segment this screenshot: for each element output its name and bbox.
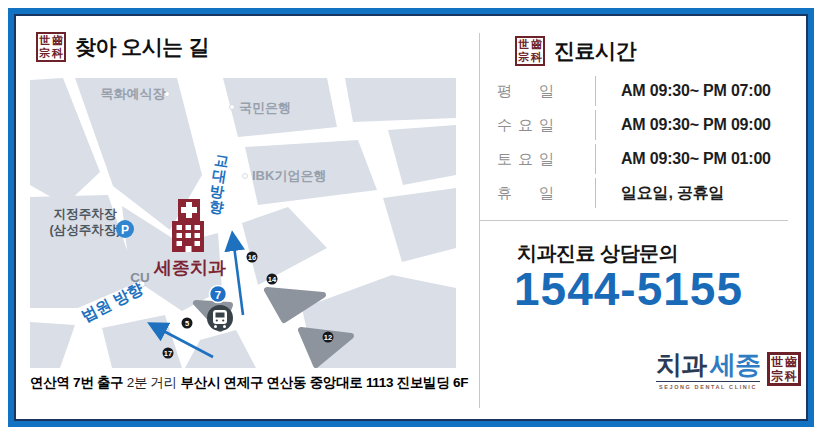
logo-word-chigwa: 치과	[656, 350, 706, 380]
hours-day: 토요일	[497, 150, 554, 169]
exit-number-5: 5	[182, 318, 193, 329]
hours-row: 평일AM 09:30~ PM 07:00	[497, 76, 789, 106]
hours-row: 수요일AM 09:30~ PM 09:00	[497, 110, 789, 140]
clinic-logo: 치과세종 SEJONG DENTAL CLINIC 世 齒 宗 科	[656, 352, 801, 390]
svg-text:7: 7	[215, 289, 221, 301]
logo-word-sejong: 세종	[710, 350, 760, 380]
horizontal-divider	[480, 220, 788, 221]
svg-text:14: 14	[268, 275, 277, 284]
hours-day: 휴일	[497, 184, 554, 203]
svg-text:16: 16	[248, 253, 256, 262]
clinic-seal-icon: 世 齒 宗 科	[36, 32, 66, 62]
seal-char: 科	[52, 48, 63, 59]
hours-rows: 평일AM 09:30~ PM 07:00수요일AM 09:30~ PM 09:0…	[497, 76, 789, 212]
directions-title: 世 齒 宗 科 찾아 오시는 길	[36, 32, 209, 62]
seal-char: 宗	[39, 48, 50, 59]
seal-char: 宗	[518, 52, 529, 63]
seal-char: 科	[785, 370, 797, 382]
seal-char: 齒	[531, 39, 542, 50]
clinic-seal-icon: 世 齒 宗 科	[767, 352, 801, 386]
hours-time: 일요일, 공휴일	[595, 178, 724, 208]
svg-text:17: 17	[164, 349, 172, 358]
svg-text:12: 12	[324, 333, 332, 342]
hours-day: 수요일	[497, 116, 554, 135]
address: 연산역 7번 출구 2분 거리 부산시 연제구 연산동 중앙대로 1113 진보…	[30, 374, 468, 392]
seal-char: 世	[518, 39, 529, 50]
exit-number-14: 14	[267, 274, 278, 285]
svg-text:5: 5	[185, 319, 189, 328]
kookmin-bank-label: 국민은행	[239, 100, 291, 115]
subway-station-icon	[207, 305, 233, 331]
hours-time: AM 09:30~ PM 09:00	[595, 110, 771, 140]
hours-row: 휴일일요일, 공휴일	[497, 178, 789, 208]
seal-char: 世	[771, 356, 783, 368]
parking-icon: P	[116, 220, 134, 238]
exit-number-12: 12	[323, 332, 334, 343]
hours-title: 世 齒 宗 科 진료시간	[515, 36, 636, 66]
parking-label-line1: 지정주차장	[54, 207, 117, 221]
svg-text:P: P	[121, 223, 129, 237]
exit-number-16: 16	[247, 252, 258, 263]
seal-char: 齒	[785, 356, 797, 368]
seal-char: 齒	[52, 35, 63, 46]
hours-row: 토요일AM 09:30~ PM 01:00	[497, 144, 789, 174]
seal-char: 世	[39, 35, 50, 46]
parking-label-line2: (삼성주차장)	[50, 223, 121, 237]
directions-title-text: 찾아 오시는 길	[75, 33, 209, 61]
clinic-map-label: 세종치과	[153, 258, 226, 278]
ibk-bank-label: IBK기업은행	[252, 168, 326, 183]
hours-time: AM 09:30~ PM 07:00	[595, 76, 771, 106]
subway-exit7-badge: 7	[210, 286, 227, 303]
seal-char: 科	[531, 52, 542, 63]
exit-number-17: 17	[163, 348, 174, 359]
phone-number: 1544-5155	[514, 262, 743, 316]
clinic-seal-icon: 世 齒 宗 科	[515, 36, 545, 66]
hours-day: 평일	[497, 82, 554, 101]
wedding-hall-label: 목화예식장	[101, 86, 167, 101]
seal-char: 宗	[771, 370, 783, 382]
clinic-logo-words: 치과세종	[656, 352, 760, 378]
hours-title-text: 진료시간	[554, 37, 636, 65]
hours-time: AM 09:30~ PM 01:00	[595, 144, 771, 174]
location-map: 목화예식장 국민은행 IBK기업은행 지정주차장 (삼성주차장) CU 교 대 …	[30, 78, 456, 372]
gyodae-direction-label: 교 대 방 향	[206, 152, 234, 217]
clinic-logo-subtext: SEJONG DENTAL CLINIC	[656, 381, 760, 390]
